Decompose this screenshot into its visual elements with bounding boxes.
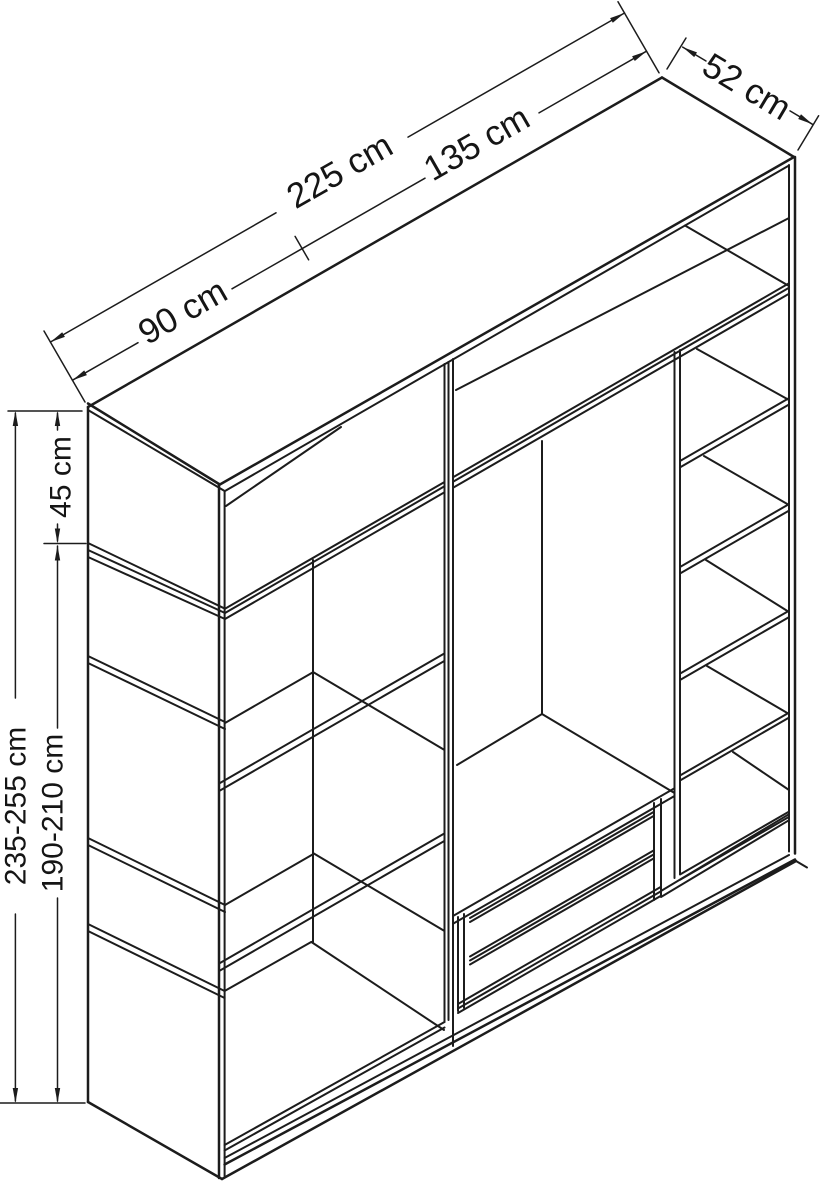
svg-text:235-255 cm: 235-255 cm — [0, 727, 32, 885]
svg-text:45 cm: 45 cm — [45, 436, 78, 518]
svg-text:190-210 cm: 190-210 cm — [37, 734, 70, 892]
